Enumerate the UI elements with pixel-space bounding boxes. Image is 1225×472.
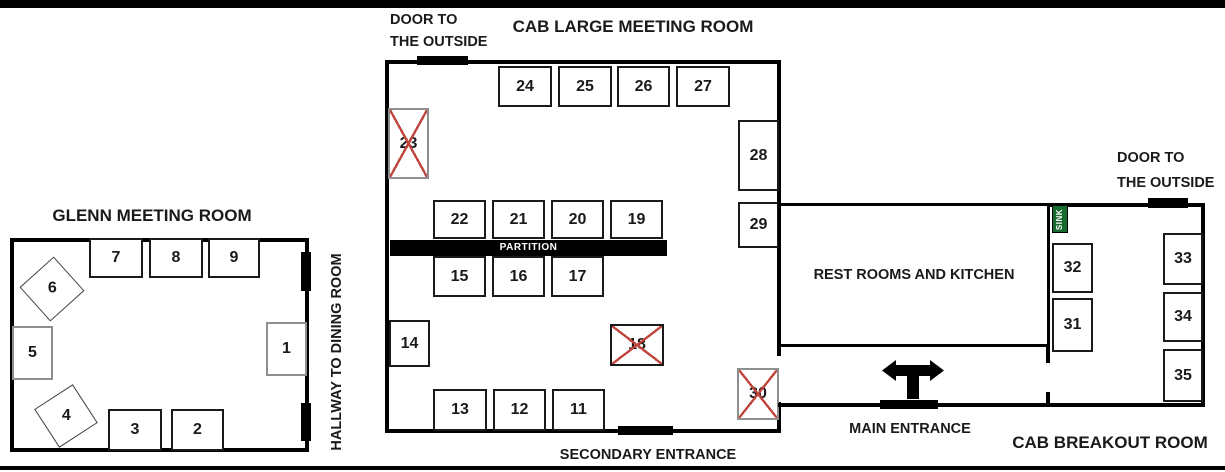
table-20: 20 bbox=[551, 200, 604, 239]
partition-label: PARTITION bbox=[500, 243, 558, 253]
table-19-number: 19 bbox=[628, 212, 646, 228]
main-entrance-label: MAIN ENTRANCE bbox=[810, 421, 1010, 437]
table-17: 17 bbox=[551, 256, 604, 297]
table-31-number: 31 bbox=[1064, 317, 1082, 333]
table-1: 1 bbox=[266, 322, 307, 376]
table-35-number: 35 bbox=[1174, 368, 1192, 384]
door-to-outside-top-line1: DOOR TO bbox=[390, 9, 487, 31]
table-8: 8 bbox=[149, 238, 203, 278]
table-13-number: 13 bbox=[451, 402, 469, 418]
table-29: 29 bbox=[738, 202, 779, 248]
table-21-number: 21 bbox=[510, 212, 528, 228]
table-28-number: 28 bbox=[750, 148, 768, 164]
cab-large-room-title: CAB LARGE MEETING ROOM bbox=[483, 17, 783, 37]
table-33-number: 33 bbox=[1174, 251, 1192, 267]
table-8-number: 8 bbox=[172, 250, 181, 266]
table-11: 11 bbox=[552, 389, 605, 431]
table-32: 32 bbox=[1052, 243, 1093, 293]
table-12-number: 12 bbox=[511, 402, 529, 418]
table-14: 14 bbox=[389, 320, 430, 367]
table-34-number: 34 bbox=[1174, 309, 1192, 325]
main-entrance-door-icon bbox=[880, 400, 938, 409]
table-33: 33 bbox=[1163, 233, 1203, 285]
table-23-number: 23 bbox=[400, 136, 418, 152]
table-30-number: 30 bbox=[749, 386, 767, 402]
door-to-outside-right-line2: THE OUTSIDE bbox=[1117, 171, 1214, 196]
secondary-entrance-label: SECONDARY ENTRANCE bbox=[548, 447, 748, 463]
table-31: 31 bbox=[1052, 298, 1093, 352]
table-35: 35 bbox=[1163, 349, 1203, 402]
table-7-number: 7 bbox=[112, 250, 121, 266]
table-25: 25 bbox=[558, 66, 612, 107]
main-entrance-direction-arrow-icon bbox=[882, 360, 944, 400]
table-34: 34 bbox=[1163, 292, 1203, 342]
table-29-number: 29 bbox=[750, 217, 768, 233]
top-border bbox=[0, 0, 1225, 8]
table-26-number: 26 bbox=[635, 79, 653, 95]
table-23: 23 bbox=[388, 108, 429, 179]
door-to-outside-top-line2: THE OUTSIDE bbox=[390, 31, 487, 53]
table-15: 15 bbox=[433, 256, 486, 297]
table-3: 3 bbox=[108, 409, 162, 451]
table-18-number: 18 bbox=[628, 337, 646, 353]
table-5: 5 bbox=[12, 326, 53, 380]
table-27-number: 27 bbox=[694, 79, 712, 95]
glenn-door-top-icon bbox=[301, 252, 311, 291]
partition-bar: PARTITION bbox=[390, 240, 667, 256]
outer-bottom-wall bbox=[778, 403, 1205, 407]
table-2: 2 bbox=[171, 409, 224, 451]
table-19: 19 bbox=[610, 200, 663, 239]
bottom-border bbox=[0, 466, 1225, 470]
table-22: 22 bbox=[433, 200, 486, 239]
table-32-number: 32 bbox=[1064, 260, 1082, 276]
table-21: 21 bbox=[492, 200, 545, 239]
secondary-entrance-door-icon bbox=[618, 426, 673, 435]
table-25-number: 25 bbox=[576, 79, 594, 95]
table-24: 24 bbox=[498, 66, 552, 107]
cab-breakout-room-title: CAB BREAKOUT ROOM bbox=[1010, 433, 1210, 453]
table-20-number: 20 bbox=[569, 212, 587, 228]
table-27: 27 bbox=[676, 66, 730, 107]
table-17-number: 17 bbox=[569, 269, 587, 285]
table-3-number: 3 bbox=[131, 422, 140, 438]
glenn-room-title: GLENN MEETING ROOM bbox=[2, 206, 302, 226]
table-2-number: 2 bbox=[193, 422, 202, 438]
table-13: 13 bbox=[433, 389, 487, 431]
table-11-number: 11 bbox=[570, 402, 587, 418]
table-24-number: 24 bbox=[516, 79, 534, 95]
outside-door-top-icon bbox=[417, 56, 468, 65]
sink-label: SINK bbox=[1056, 208, 1065, 229]
restrooms-kitchen-label: REST ROOMS AND KITCHEN bbox=[814, 267, 1015, 283]
floor-plan: DOOR TO THE OUTSIDE CAB LARGE MEETING RO… bbox=[0, 0, 1225, 472]
table-5-number: 5 bbox=[28, 345, 37, 361]
table-4-number: 4 bbox=[62, 408, 71, 424]
table-14-number: 14 bbox=[401, 336, 419, 352]
table-15-number: 15 bbox=[451, 269, 469, 285]
hallway-to-dining-room-label: HALLWAY TO DINING ROOM bbox=[329, 252, 347, 452]
table-16-number: 16 bbox=[510, 269, 528, 285]
door-to-outside-top-label: DOOR TO THE OUTSIDE bbox=[390, 9, 487, 53]
table-22-number: 22 bbox=[451, 212, 469, 228]
door-to-outside-right-label: DOOR TO THE OUTSIDE bbox=[1117, 146, 1214, 196]
table-26: 26 bbox=[617, 66, 670, 107]
table-9-number: 9 bbox=[230, 250, 239, 266]
glenn-door-bottom-icon bbox=[301, 403, 311, 441]
table-16: 16 bbox=[492, 256, 545, 297]
sink-box: SINK bbox=[1052, 205, 1068, 233]
table-30: 30 bbox=[737, 368, 779, 420]
restrooms-kitchen-box: REST ROOMS AND KITCHEN bbox=[778, 203, 1050, 347]
table-28: 28 bbox=[738, 120, 779, 191]
table-18: 18 bbox=[610, 324, 664, 366]
table-6-number: 6 bbox=[48, 281, 57, 297]
outside-door-right-icon bbox=[1148, 198, 1188, 208]
table-12: 12 bbox=[493, 389, 546, 431]
door-to-outside-right-line1: DOOR TO bbox=[1117, 146, 1214, 171]
table-7: 7 bbox=[89, 238, 143, 278]
table-1-number: 1 bbox=[282, 341, 291, 357]
table-9: 9 bbox=[208, 238, 260, 278]
breakout-left-wall-lower bbox=[1046, 392, 1050, 407]
